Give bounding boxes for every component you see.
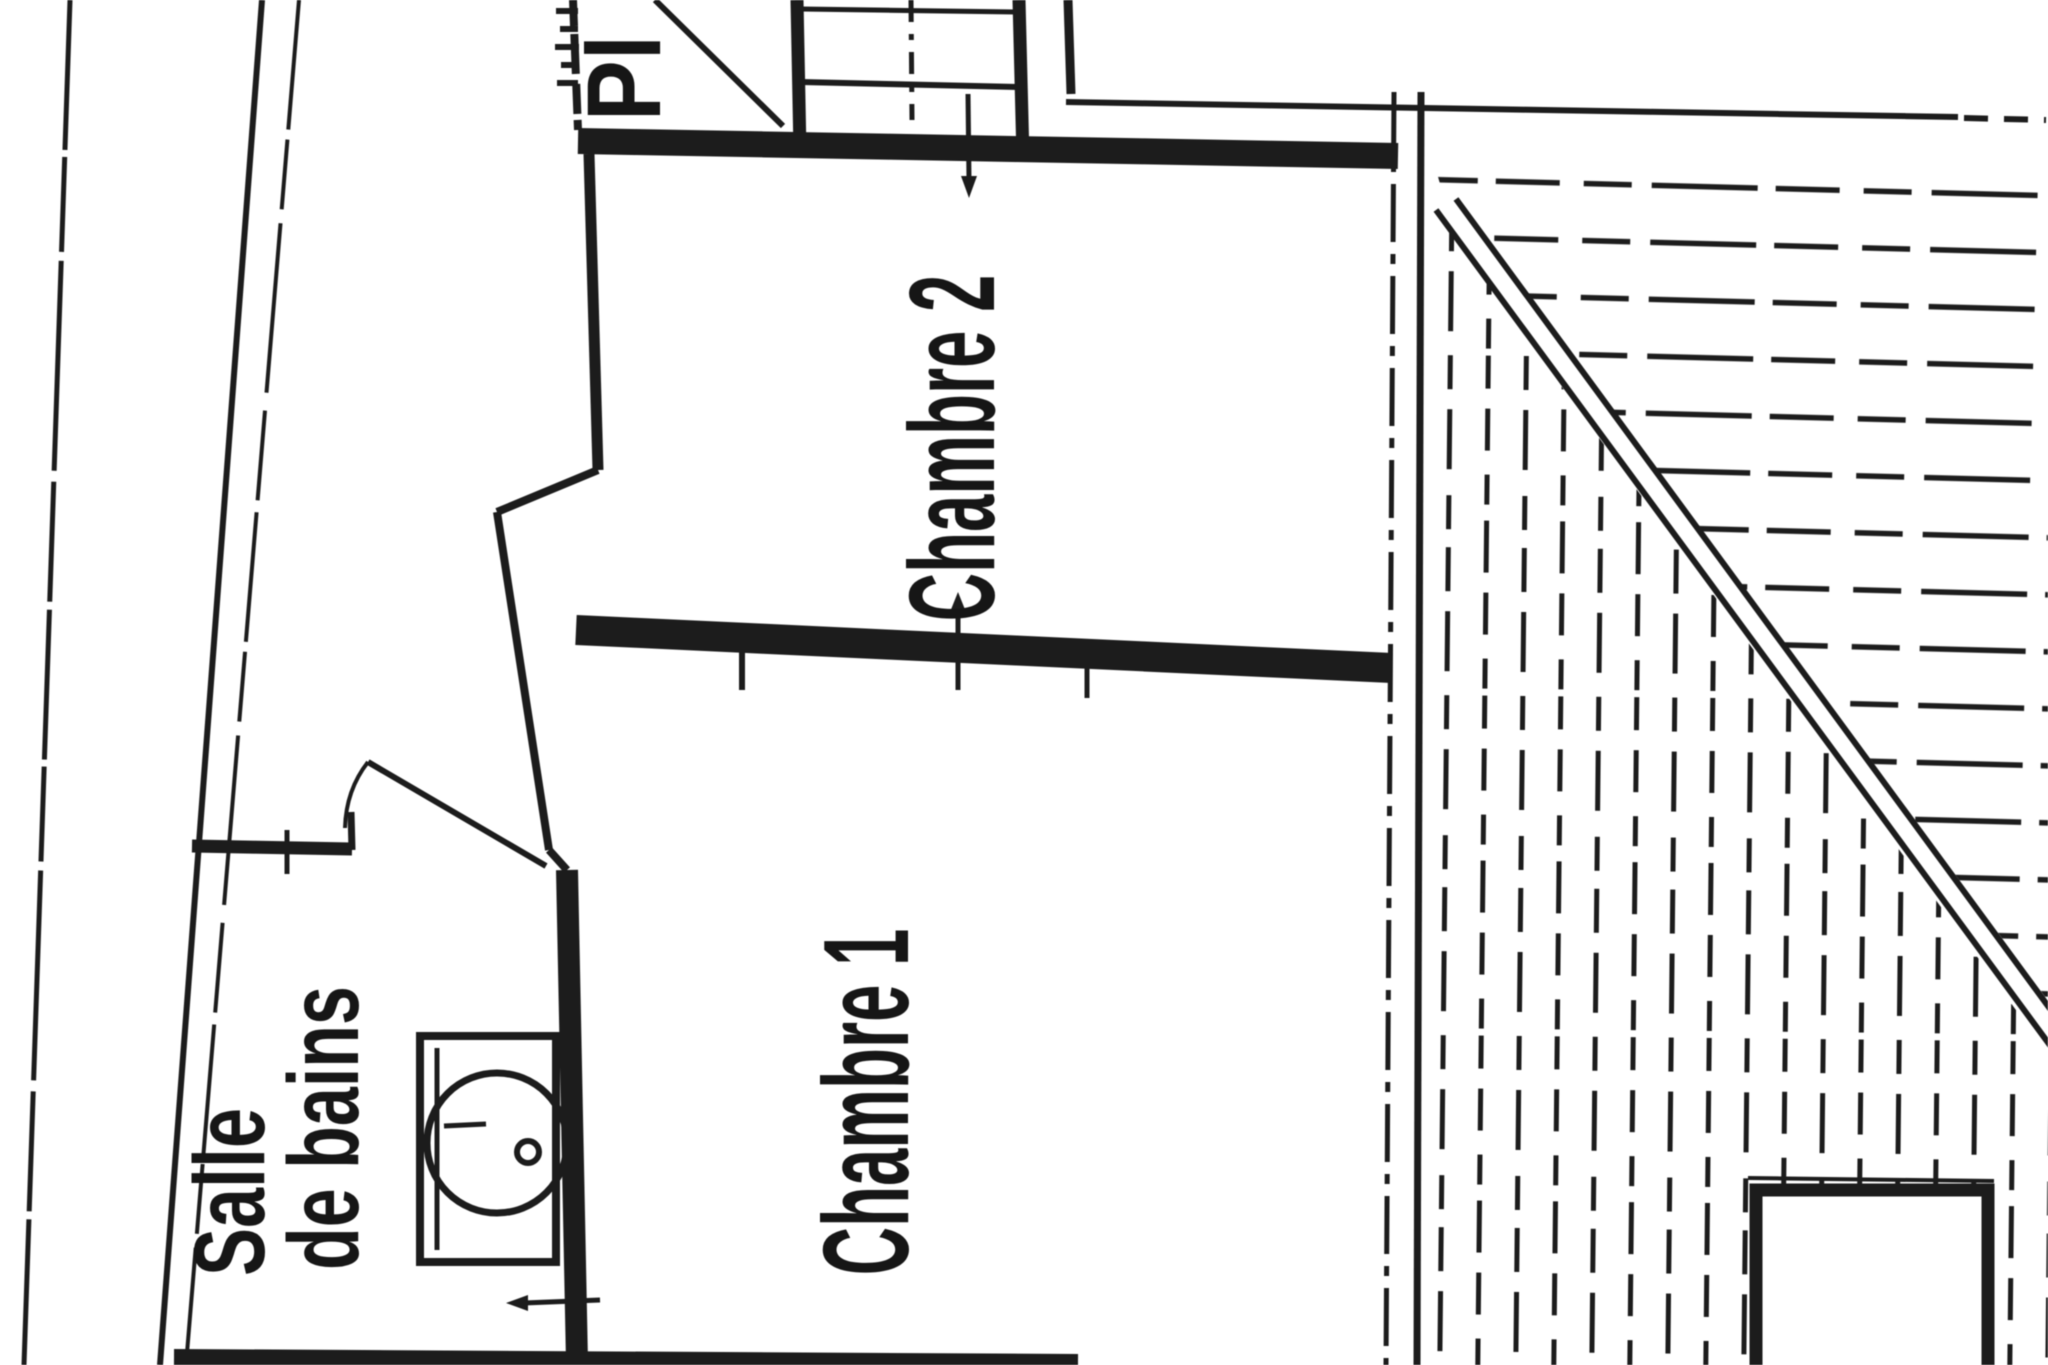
- floorplan-scan: Pl: [0, 0, 2048, 1365]
- stairs-right-wall: [1019, 0, 1023, 158]
- roof-boundary-solid-line: [1417, 92, 1421, 1365]
- eave-corner-stub: [1068, 0, 1071, 94]
- bathroom-top-wall: [192, 846, 352, 849]
- wall-bottom: [174, 1357, 1078, 1362]
- wall-top-chambre2: [578, 141, 1398, 156]
- stairs-left-wall: [797, 0, 800, 152]
- roof-window: [1748, 1178, 1994, 1365]
- room-label-de-bains: de bains: [269, 986, 380, 1270]
- room-label-chambre1: Chambre 1: [798, 929, 934, 1276]
- bathroom-door-jamb: [351, 812, 352, 850]
- wall-bathroom-right: [567, 870, 577, 1362]
- stair-tread: [801, 9, 1016, 12]
- room-label-pl: Pl: [565, 35, 682, 121]
- room-label-chambre2: Chambre 2: [884, 275, 1020, 622]
